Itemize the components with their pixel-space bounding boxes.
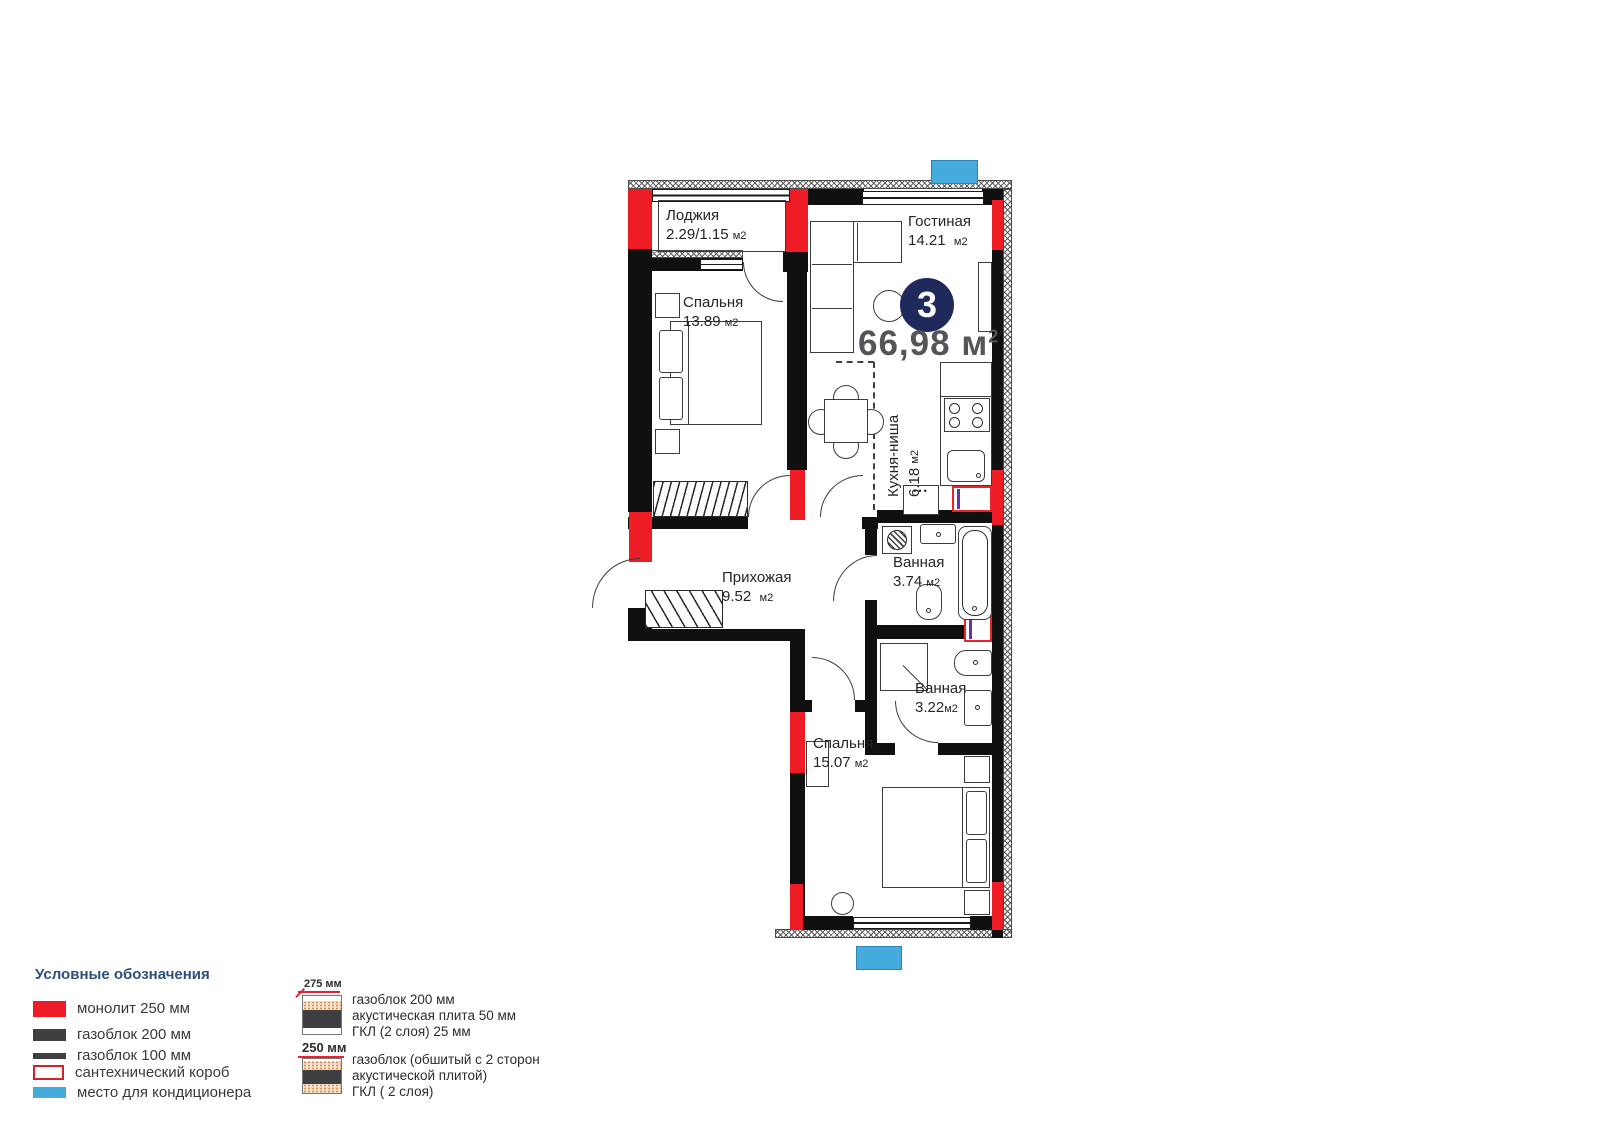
wall-sample-2-text: газоблок (обшитый с 2 сторон акустическо… (352, 1052, 540, 1100)
wall (806, 189, 864, 205)
wall (865, 600, 877, 755)
gasblock-layer (303, 1010, 341, 1028)
sofa-icon (810, 221, 854, 353)
acoustic-layer (303, 1084, 341, 1093)
monolith-pier (629, 512, 652, 562)
sofa-cushion-line (857, 223, 858, 261)
bed-headboard-line (962, 788, 963, 887)
tv-unit (978, 262, 992, 332)
monolith-pier (790, 712, 805, 773)
door-arc-entrance (592, 558, 640, 608)
door-arc-balcony (743, 262, 783, 302)
pillow (966, 839, 987, 883)
wall (805, 700, 812, 712)
monolith-pier (992, 882, 1003, 930)
door-arc-bath1 (833, 555, 877, 601)
exterior-hatch (1003, 189, 1012, 938)
room-label-loggia: Лоджия 2.29/1.15 м2 (666, 206, 746, 246)
total-area-label: 66,98 м2 (858, 324, 999, 364)
legend-item-gasblock100: газоблок 100 мм (33, 1047, 191, 1064)
room-label-bath1: Ванная 3.74 м2 (893, 553, 944, 593)
sofa-cushion-line (812, 308, 852, 309)
room-label-living: Гостиная 14.21 м2 (908, 212, 971, 252)
nightstand (964, 890, 990, 915)
bathtub-icon (958, 526, 992, 620)
washing-machine-icon (882, 526, 912, 554)
legend-item-plumbing-box: сантехнический короб (33, 1064, 230, 1081)
room-label-bedroom2: Спальня 15.07 м2 (813, 734, 873, 774)
room-label-kitchen: Кухня-ниша 6.18 м2 (884, 385, 925, 497)
legend-swatch-gasblock200-icon (33, 1029, 66, 1041)
legend-swatch-monolith-icon (33, 1001, 66, 1017)
nightstand (655, 293, 680, 318)
monolith-pier (790, 470, 805, 520)
pillow (966, 791, 987, 835)
monolith-pier (790, 884, 803, 930)
bath2-sink-icon (964, 690, 992, 726)
wall (628, 249, 652, 512)
pillow (659, 377, 683, 420)
acoustic-layer (303, 1061, 341, 1070)
gasblock-layer (303, 1070, 341, 1084)
wall (877, 743, 895, 755)
dining-table (824, 399, 868, 443)
balcony-window (700, 259, 743, 270)
nightstand (655, 429, 680, 454)
wall-sample-2-dimension: 250 мм (302, 1040, 347, 1055)
toilet-icon (954, 650, 992, 676)
kitchen-counter-line (941, 396, 991, 397)
exterior-hatch (775, 929, 1012, 938)
hall-wardrobe-hatch (645, 590, 723, 628)
wall-sample-1-text: газоблок 200 мм акустическая плита 50 мм… (352, 992, 516, 1040)
kitchen-dashed-line (873, 362, 875, 510)
wall (628, 629, 805, 641)
acoustic-layer (303, 1001, 341, 1010)
stove-icon (944, 398, 990, 432)
legend-title: Условные обозначения (35, 966, 210, 983)
door-arc-bedroom2 (812, 657, 855, 700)
wall (787, 252, 807, 470)
window (853, 917, 971, 929)
wardrobe-hatch (653, 481, 748, 517)
bed-headboard-line (688, 322, 689, 424)
floor-plan-canvas: ••• Лоджия 2.29/1.15 м2 (0, 0, 1600, 1131)
bed-icon (670, 321, 762, 425)
room-label-bedroom1: Спальня 13.89 м2 (683, 293, 743, 333)
sink-icon (947, 450, 985, 482)
sofa-cushion-line (812, 264, 852, 265)
room-label-hall: Прихожая 9.52 м2 (722, 568, 792, 608)
legend-item-gasblock200: газоблок 200 мм (33, 1026, 191, 1043)
wall-sample-1-swatch (302, 995, 342, 1035)
dimension-line (298, 991, 340, 993)
door-arc-bedroom1 (748, 475, 790, 517)
wall (865, 517, 877, 555)
window (862, 191, 984, 205)
bath1-sink-icon (920, 524, 956, 544)
wall (855, 700, 877, 712)
legend-item-ac-place: место для кондиционера (33, 1084, 251, 1101)
ac-placeholder-top (931, 160, 978, 184)
legend-swatch-plumbing-box-icon (33, 1065, 64, 1080)
monolith-pier (628, 189, 652, 249)
room-label-bath2: Ванная 3.22м2 (915, 679, 966, 719)
monolith-pier (992, 200, 1003, 250)
pouf (831, 892, 854, 915)
nightstand (964, 756, 990, 783)
legend-swatch-gasblock100-icon (33, 1053, 66, 1059)
legend-swatch-ac-icon (33, 1087, 66, 1098)
ac-placeholder-bottom (856, 946, 902, 970)
monolith-pier (992, 470, 1003, 525)
door-arc-living (820, 475, 863, 517)
pillow (659, 330, 683, 373)
legend-item-monolith: монолит 250 мм (33, 1000, 190, 1017)
wall-sample-2-swatch (302, 1058, 342, 1094)
plumbing-box (952, 486, 992, 512)
wall-sample-1-dimension: 275 мм (304, 978, 342, 990)
wall (992, 189, 1003, 938)
